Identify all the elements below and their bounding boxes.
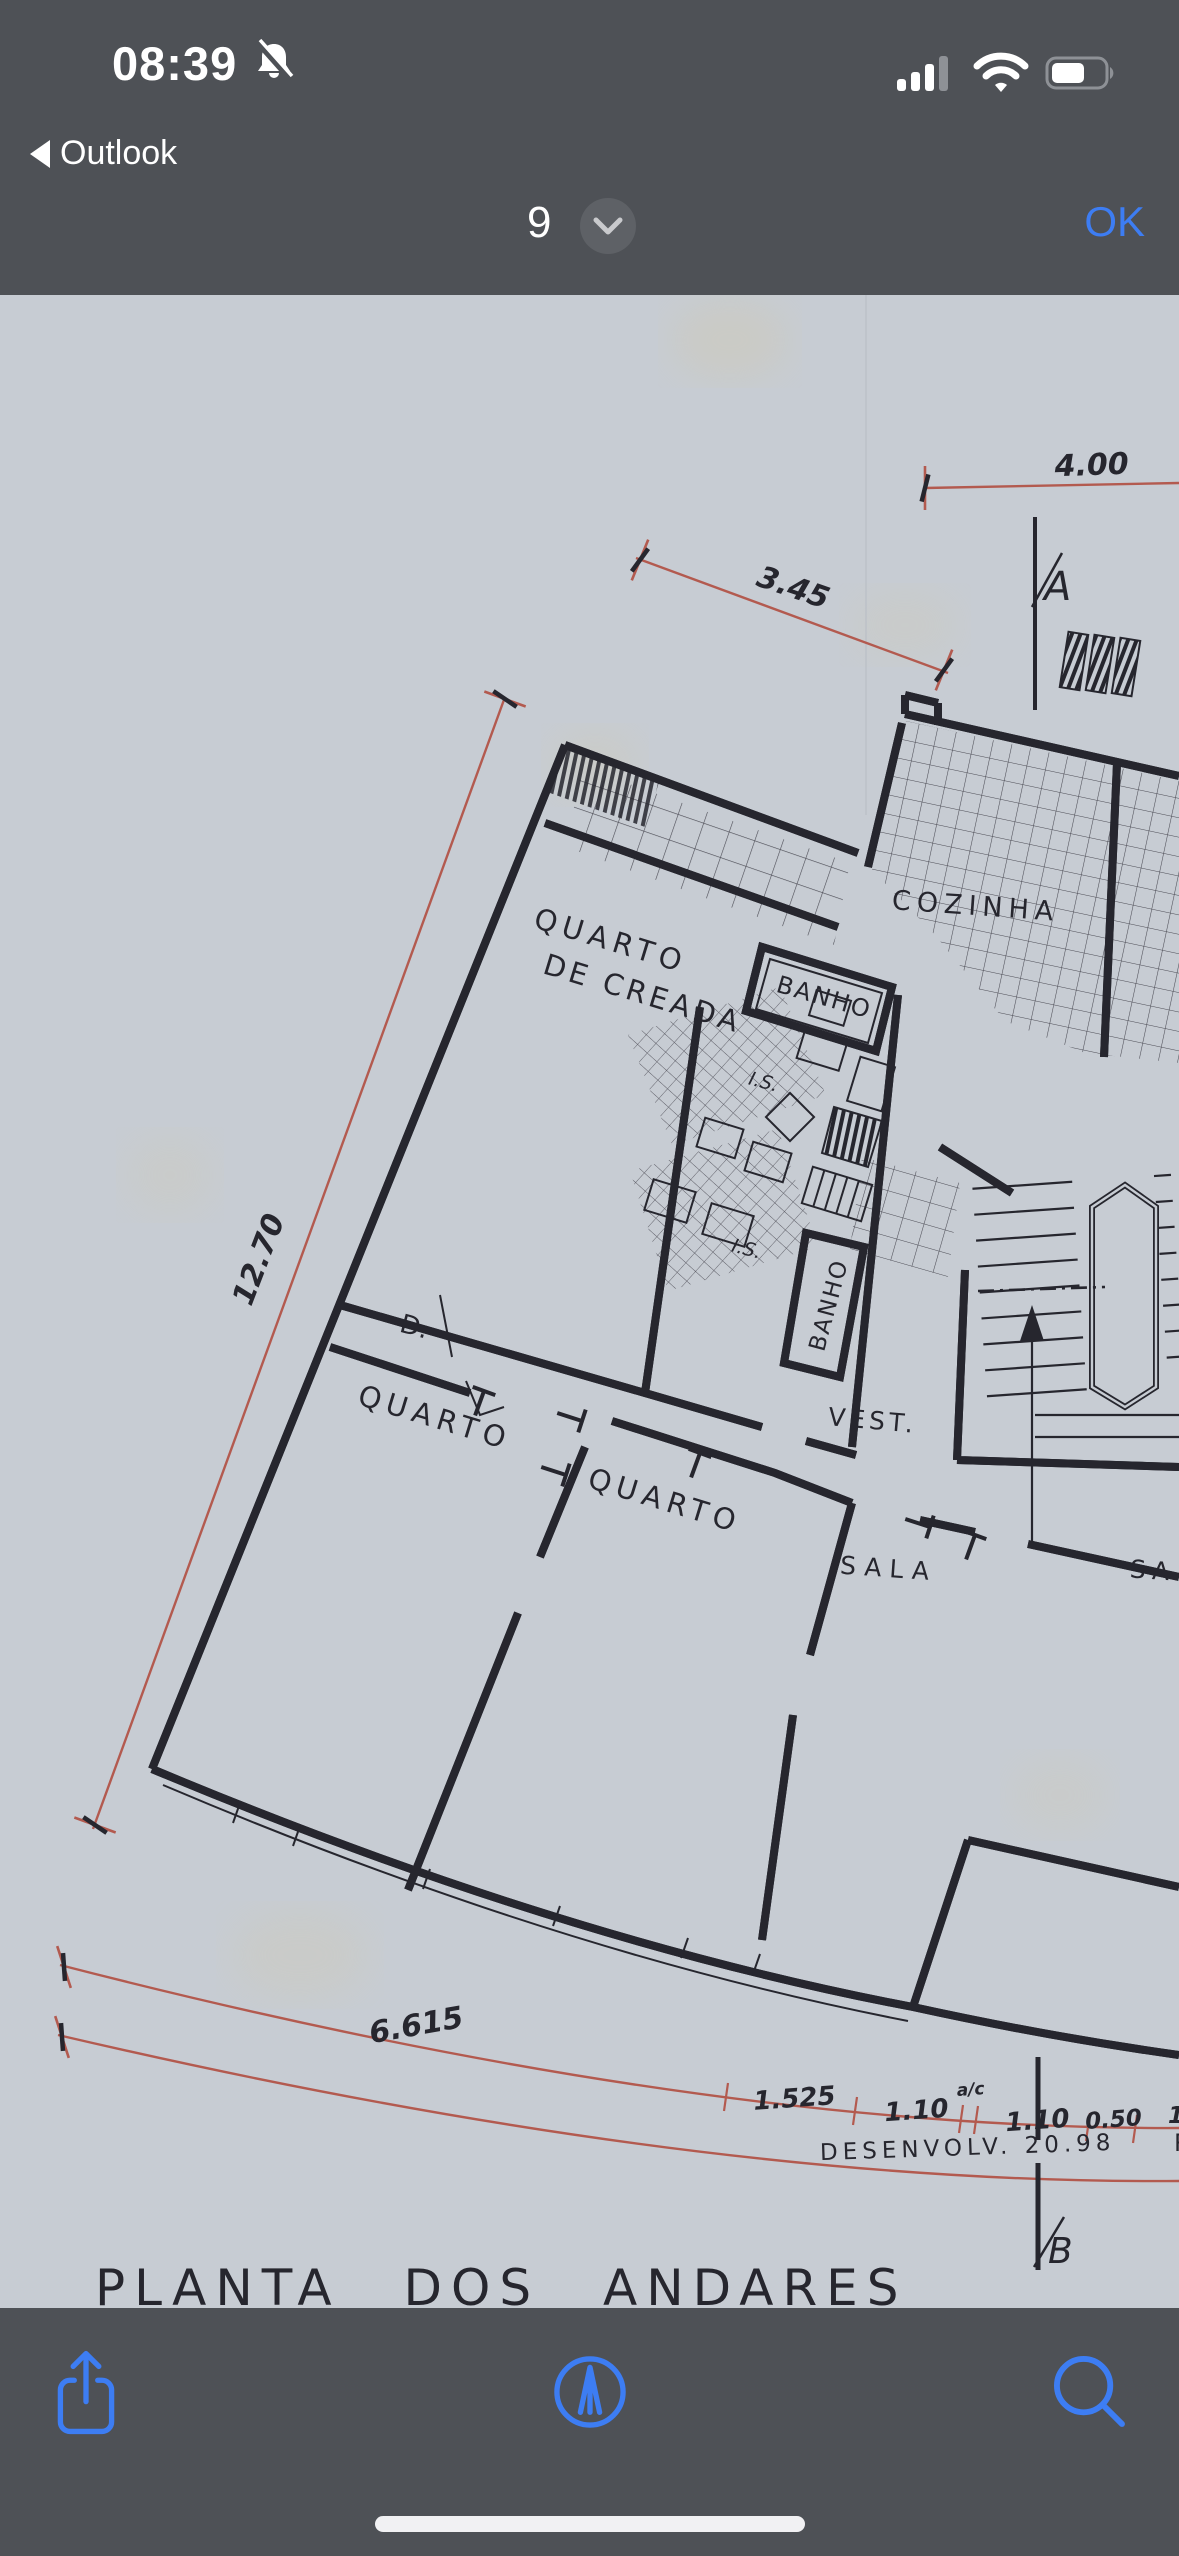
battery-icon: [1045, 54, 1119, 97]
status-and-nav-bar: 08:39: [0, 0, 1179, 295]
share-icon: [38, 2344, 134, 2440]
staircase: [972, 1175, 1179, 1547]
search-button[interactable]: [1042, 2344, 1138, 2440]
status-right: [895, 52, 1119, 99]
dim-seg2-note: a/c: [956, 2079, 985, 2101]
status-left: 08:39: [112, 36, 297, 91]
dim-top: 4.00: [1053, 447, 1129, 485]
room-label-bedroom-center: QUARTO: [584, 1461, 746, 1540]
bell-slash-icon: [251, 38, 297, 89]
plan-title: PLANTA DOS ANDARES: [95, 2259, 908, 2308]
room-label-vestibule: VEST.: [827, 1402, 918, 1439]
markup-compass-icon: [542, 2344, 638, 2440]
clock: 08:39: [112, 36, 237, 91]
room-label-closet: D.: [397, 1309, 432, 1345]
room-label-living-partial: SA: [1129, 1554, 1176, 1586]
dim-seg1: 1.525: [752, 2081, 836, 2117]
iphone-screen: 08:39: [0, 0, 1179, 2556]
paper-stains: [125, 295, 1110, 2000]
search-icon: [1042, 2344, 1138, 2440]
floor-plan-document[interactable]: A B: [0, 295, 1179, 2308]
page-dropdown-button[interactable]: [580, 198, 636, 254]
dimension-end-ticks: [52, 466, 955, 2059]
wifi-icon: [973, 52, 1029, 99]
dim-development-partial: R: [1174, 2129, 1179, 2157]
dim-seg5-partial: 1: [1168, 2103, 1179, 2129]
nav-row: 9 OK: [0, 196, 1179, 266]
section-marker-a: A: [1041, 564, 1071, 610]
markup-button[interactable]: [542, 2344, 638, 2440]
page-indicator: 9: [527, 198, 551, 248]
dim-development: DESENVOLV. 20.98: [820, 2130, 1116, 2166]
bottom-toolbar: [0, 2308, 1179, 2556]
dim-bottom-arc: 6.615: [367, 2000, 467, 2051]
home-indicator[interactable]: [375, 2516, 805, 2532]
section-line-b: B: [1034, 2057, 1073, 2272]
room-label-living: SALA: [839, 1551, 938, 1587]
back-app-label: Outlook: [60, 134, 177, 173]
share-button[interactable]: [38, 2344, 134, 2440]
dim-seg2: 1.10: [883, 2094, 949, 2128]
back-to-app[interactable]: Outlook: [30, 134, 177, 173]
chevron-down-icon: [593, 216, 623, 236]
room-label-bedroom-left: QUARTO: [354, 1378, 516, 1457]
ok-button[interactable]: OK: [1084, 198, 1145, 246]
dim-upper-diagonal: 3.45: [752, 559, 833, 616]
dim-left-diagonal: 12.70: [226, 1209, 293, 1310]
back-arrow-icon: [30, 140, 50, 168]
signal-icon: [895, 53, 957, 98]
